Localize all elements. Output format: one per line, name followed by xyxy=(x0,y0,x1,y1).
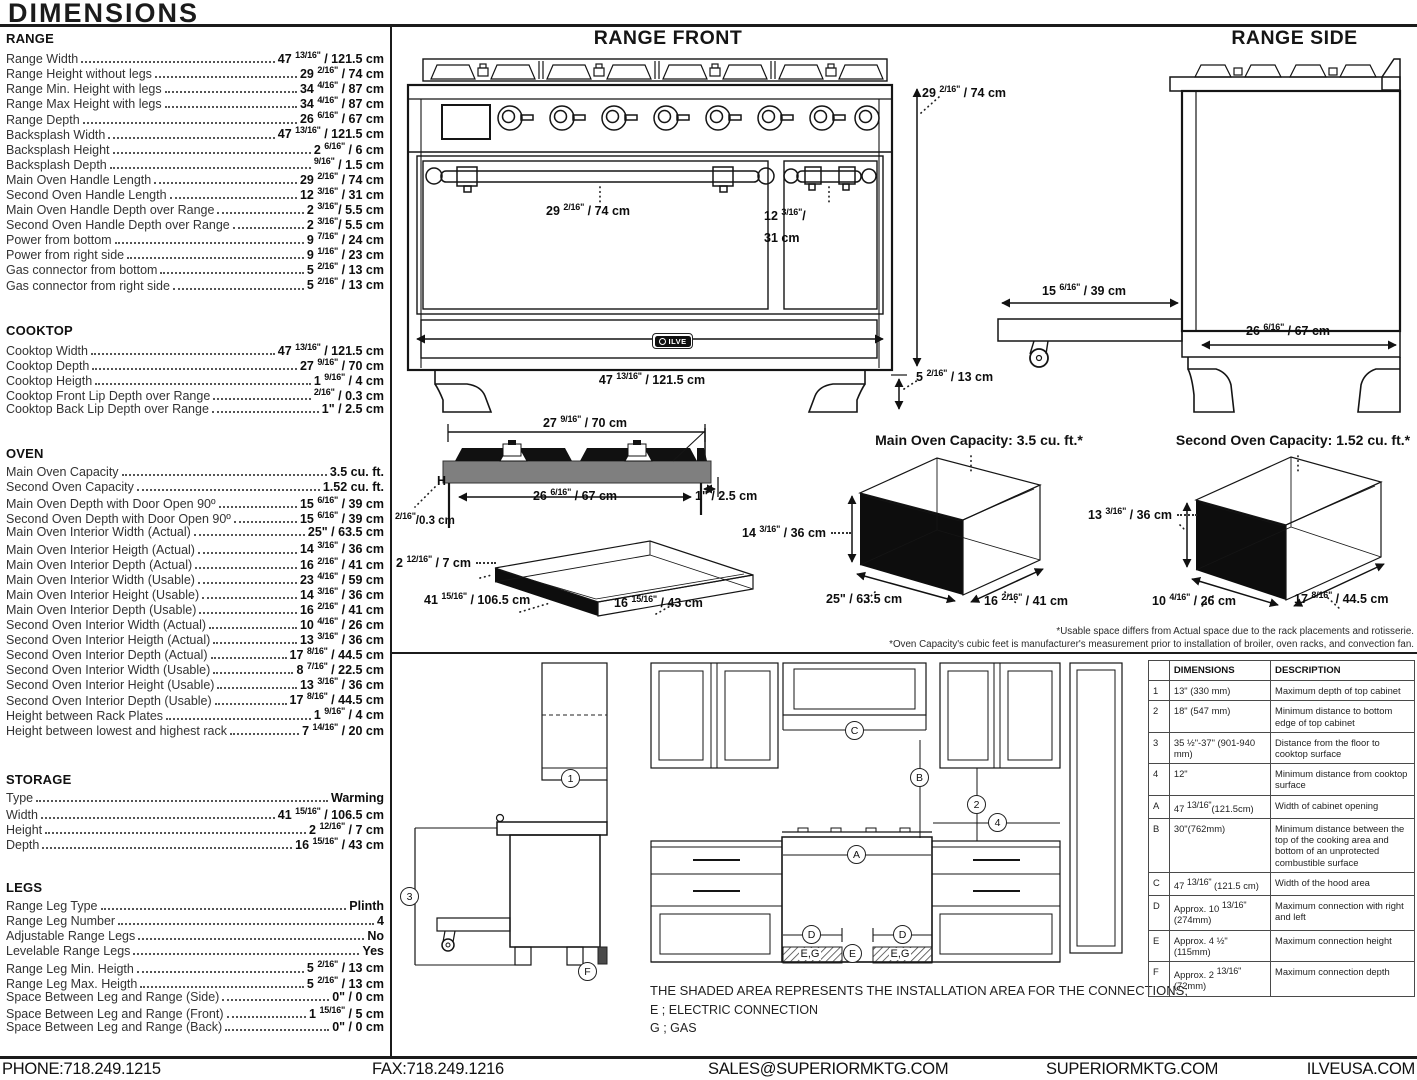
eg-chip-left: E,G xyxy=(785,948,835,960)
spec-row-value: 15 6/16" / 39 cm xyxy=(300,495,384,511)
spec-section-heading: COOKTOP xyxy=(6,322,384,340)
spec-row: Main Oven Capacity3.5 cu. ft. xyxy=(6,465,384,480)
spec-row-label: Range Height without legs xyxy=(6,67,152,81)
table-cell-key: F xyxy=(1149,962,1170,997)
dotted-leader xyxy=(95,383,311,385)
spec-row: Range Max Height with legs34 4/16" / 87 … xyxy=(6,95,384,110)
table-cell-description: Maximum connection height xyxy=(1271,930,1415,961)
second-oven-height-label: 13 3/16" / 36 cm xyxy=(1088,506,1197,522)
table-row: C47 13/16" (121.5 cm)Width of the hood a… xyxy=(1149,872,1415,895)
dotted-leader xyxy=(92,368,297,370)
spec-row: Second Oven Interior Heigth (Actual)13 3… xyxy=(6,631,384,646)
footer-website[interactable]: SUPERIORMKTG.COM xyxy=(1046,1060,1218,1079)
spec-row-value: 2 3/16"/ 5.5 cm xyxy=(307,216,384,232)
footer-email[interactable]: SALES@SUPERIORMKTG.COM xyxy=(708,1060,948,1079)
install-marker-3: 3 xyxy=(400,887,419,906)
side-depth-label: 26 6/16" / 67 cm xyxy=(1246,322,1330,338)
spec-row-value: 14 3/16" / 36 cm xyxy=(300,586,384,602)
spec-row-label: Range Depth xyxy=(6,113,80,127)
spec-sections: RANGERange Width47 13/16" / 121.5 cmRang… xyxy=(6,30,384,1035)
section-divider xyxy=(392,652,1417,654)
spec-row: Cooktop Depth27 9/16" / 70 cm xyxy=(6,357,384,372)
spec-row: Second Oven Interior Width (Actual)10 4/… xyxy=(6,616,384,631)
spec-row-value: 5 2/16" / 13 cm xyxy=(307,959,384,975)
spec-row: Cooktop Width47 13/16" / 121.5 cm xyxy=(6,342,384,357)
spec-row-value: 34 4/16" / 87 cm xyxy=(300,95,384,111)
dotted-leader xyxy=(212,411,319,413)
spec-row-value: 47 13/16" / 121.5 cm xyxy=(278,50,384,66)
spec-row-value: 3.5 cu. ft. xyxy=(330,465,384,479)
install-side-diagram xyxy=(400,655,655,990)
spec-row-label: Cooktop Heigth xyxy=(6,374,92,388)
footnotes: *Usable space differs from Actual space … xyxy=(834,626,1414,651)
table-cell-description: Minimum distance between the top of the … xyxy=(1271,818,1415,872)
table-cell-dimension: 47 13/16"(121.5cm) xyxy=(1169,795,1270,818)
spec-row-label: Main Oven Handle Depth over Range xyxy=(6,203,214,217)
spec-section-heading: OVEN xyxy=(6,445,384,463)
ilve-logo: ILVE xyxy=(652,333,693,349)
table-cell-key: 1 xyxy=(1149,681,1170,701)
storage-drawer-diagram xyxy=(478,538,778,623)
table-cell-key: 4 xyxy=(1149,764,1170,795)
main-oven-height-label: 14 3/16" / 36 cm xyxy=(742,524,851,540)
front-second-handle-line1: 12 3/16"/ xyxy=(764,201,806,227)
table-row: DApprox. 10 13/16" (274mm)Maximum connec… xyxy=(1149,896,1415,931)
spec-row-value: 27 9/16" / 70 cm xyxy=(300,357,384,373)
dotted-leader xyxy=(219,506,297,508)
table-cell-dimension: Approx. 2 13/16" (72mm) xyxy=(1169,962,1270,997)
front-main-handle-label: 29 2/16" / 74 cm xyxy=(546,202,630,218)
spec-row-label: Range Leg Number xyxy=(6,914,115,928)
storage-width-label: 41 15/16" / 106.5 cm xyxy=(424,591,530,607)
dotted-leader xyxy=(217,212,303,214)
spec-row: Backsplash Width47 13/16" / 121.5 cm xyxy=(6,125,384,140)
spec-section-heading: STORAGE xyxy=(6,771,384,789)
spec-row-value: 1 9/16" / 4 cm xyxy=(314,372,384,388)
spec-row-value: 9/16" / 1.5 cm xyxy=(314,156,384,172)
install-note: THE SHADED AREA REPRESENTS THE INSTALLAT… xyxy=(650,983,1188,998)
dotted-leader xyxy=(173,288,304,290)
dotted-leader xyxy=(209,627,297,629)
table-header-key xyxy=(1149,661,1170,681)
dotted-leader xyxy=(202,597,297,599)
spec-row-label: Second Oven Interior Width (Actual) xyxy=(6,618,206,632)
table-cell-key: D xyxy=(1149,896,1170,931)
eg-chip-right: E,G xyxy=(875,948,925,960)
spec-row: Gas connector from bottom5 2/16" / 13 cm xyxy=(6,261,384,276)
spec-row-label: Main Oven Interior Width (Usable) xyxy=(6,573,195,587)
spec-row: Range Leg TypePlinth xyxy=(6,899,384,914)
table-row: 218" (547 mm)Minimum distance to bottom … xyxy=(1149,701,1415,732)
spec-row-label: Power from bottom xyxy=(6,233,112,247)
cooktop-front-lip-label: 2/16"/0.3 cm xyxy=(395,511,455,527)
spec-row-value: 1.52 cu. ft. xyxy=(323,480,384,494)
spec-row-value: 47 13/16" / 121.5 cm xyxy=(278,342,384,358)
spec-row-label: Main Oven Interior Depth (Usable) xyxy=(6,603,196,617)
dotted-leader xyxy=(154,182,297,184)
spec-row-label: Adjustable Range Legs xyxy=(6,929,135,943)
spec-row-label: Range Min. Height with legs xyxy=(6,82,162,96)
install-marker-1: 1 xyxy=(561,769,580,788)
dotted-leader xyxy=(211,657,287,659)
main-oven-title: Main Oven Capacity: 3.5 cu. ft.* xyxy=(843,432,1115,448)
spec-row-value: 7 14/16" / 20 cm xyxy=(302,722,384,738)
table-cell-key: B xyxy=(1149,818,1170,872)
spec-row-label: Second Oven Capacity xyxy=(6,480,134,494)
spec-row-label: Main Oven Handle Length xyxy=(6,173,151,187)
second-oven-depth-label: 17 8/16" / 44.5 cm xyxy=(1294,590,1388,606)
table-cell-description: Distance from the floor to cooktop surfa… xyxy=(1271,732,1415,763)
dotted-leader xyxy=(165,106,297,108)
spec-row-label: Main Oven Depth with Door Open 90º xyxy=(6,497,216,511)
table-cell-dimension: 30"(762mm) xyxy=(1169,818,1270,872)
spec-row: Power from bottom9 7/16" / 24 cm xyxy=(6,231,384,246)
dotted-leader xyxy=(199,612,297,614)
spec-row-label: Main Oven Interior Heigth (Actual) xyxy=(6,543,195,557)
dotted-leader xyxy=(217,687,297,689)
table-cell-key: 3 xyxy=(1149,732,1170,763)
spec-row-label: Width xyxy=(6,808,38,822)
spec-row-label: Gas connector from right side xyxy=(6,279,170,293)
spec-row: Height2 12/16" / 7 cm xyxy=(6,821,384,836)
spec-row-label: Levelable Range Legs xyxy=(6,944,130,958)
dotted-leader xyxy=(101,908,347,910)
spec-row-label: Main Oven Interior Height (Usable) xyxy=(6,588,199,602)
dotted-leader xyxy=(233,227,304,229)
table-row: EApprox. 4 ½" (115mm)Maximum connection … xyxy=(1149,930,1415,961)
dotted-leader xyxy=(115,242,304,244)
spec-row: Main Oven Interior Width (Actual)25" / 6… xyxy=(6,525,384,540)
dotted-leader xyxy=(213,642,297,644)
spec-sheet-page: DIMENSIONS RANGERange Width47 13/16" / 1… xyxy=(0,0,1417,1080)
side-door-open-label: 15 6/16" / 39 cm xyxy=(1042,282,1126,298)
spec-section: RANGERange Width47 13/16" / 121.5 cmRang… xyxy=(6,30,384,292)
dotted-leader xyxy=(137,489,320,491)
spec-row-label: Second Oven Interior Depth (Usable) xyxy=(6,694,212,708)
dotted-leader xyxy=(133,953,359,955)
dotted-leader xyxy=(41,817,275,819)
ilve-logo-icon xyxy=(659,338,666,345)
spec-row-value: 2 3/16"/ 5.5 cm xyxy=(307,201,384,217)
spec-row-value: 16 2/16" / 41 cm xyxy=(300,601,384,617)
spec-row: Main Oven Handle Depth over Range2 3/16"… xyxy=(6,201,384,216)
dotted-leader xyxy=(198,582,297,584)
table-cell-description: Maximum depth of top cabinet xyxy=(1271,681,1415,701)
table-header-row: DIMENSIONS DESCRIPTION xyxy=(1149,661,1415,681)
spec-row: Second Oven Depth with Door Open 90º15 6… xyxy=(6,510,384,525)
spec-row-value: 14 3/16" / 36 cm xyxy=(300,540,384,556)
spec-row-label: Range Leg Max. Heigth xyxy=(6,977,137,991)
table-cell-dimension: 47 13/16" (121.5 cm) xyxy=(1169,872,1270,895)
install-marker-F: F xyxy=(578,962,597,981)
spec-row-value: 9 1/16" / 23 cm xyxy=(307,246,384,262)
table-row: FApprox. 2 13/16" (72mm)Maximum connecti… xyxy=(1149,962,1415,997)
spec-row: Width41 15/16" / 106.5 cm xyxy=(6,806,384,821)
spec-row-label: Space Between Leg and Range (Back) xyxy=(6,1020,222,1034)
legend-electric: E ; ELECTRIC CONNECTION xyxy=(650,1003,818,1017)
spec-row-label: Cooktop Depth xyxy=(6,359,89,373)
spec-row: Cooktop Heigth1 9/16" / 4 cm xyxy=(6,372,384,387)
install-marker-B: B xyxy=(910,768,929,787)
spec-row-value: 47 13/16" / 121.5 cm xyxy=(278,125,384,141)
table-cell-dimension: 13" (330 mm) xyxy=(1169,681,1270,701)
spec-row-value: 29 2/16" / 74 cm xyxy=(300,65,384,81)
spec-row: Space Between Leg and Range (Side)0" / 0… xyxy=(6,990,384,1005)
column-divider xyxy=(390,25,392,1056)
spec-row: Height between lowest and highest rack7 … xyxy=(6,722,384,737)
footnote-line: *Usable space differs from Actual space … xyxy=(834,626,1414,639)
install-marker-2: 2 xyxy=(967,795,986,814)
spec-row-value: 34 4/16" / 87 cm xyxy=(300,80,384,96)
table-cell-description: Maximum connection with right and left xyxy=(1271,896,1415,931)
table-cell-description: Width of the hood area xyxy=(1271,872,1415,895)
spec-row: Main Oven Interior Heigth (Actual)14 3/1… xyxy=(6,540,384,555)
footnote-line: *Oven Capacity's cubic feet is manufactu… xyxy=(834,639,1414,652)
spec-row: Main Oven Interior Width (Usable)23 4/16… xyxy=(6,571,384,586)
install-marker-D: D xyxy=(893,925,912,944)
spec-row: Space Between Leg and Range (Front)1 15/… xyxy=(6,1005,384,1020)
table-cell-dimension: 18" (547 mm) xyxy=(1169,701,1270,732)
table-cell-description: Minimum distance to bottom edge of top c… xyxy=(1271,701,1415,732)
dotted-leader xyxy=(165,91,297,93)
spec-row: Second Oven Interior Height (Usable)13 3… xyxy=(6,676,384,691)
main-oven-width-label: 25" / 63.5 cm xyxy=(826,592,902,606)
dotted-leader xyxy=(213,672,293,674)
ilve-logo-text: ILVE xyxy=(669,337,687,346)
install-marker-D: D xyxy=(802,925,821,944)
table-row: 412"Minimum distance from cooktop surfac… xyxy=(1149,764,1415,795)
dotted-leader xyxy=(230,733,299,735)
table-cell-dimension: Approx. 10 13/16" (274mm) xyxy=(1169,896,1270,931)
spec-row-value: 29 2/16" / 74 cm xyxy=(300,171,384,187)
storage-height-label: 2 12/16" / 7 cm xyxy=(396,554,496,570)
table-cell-key: E xyxy=(1149,930,1170,961)
spec-row: Second Oven Interior Width (Usable)8 7/1… xyxy=(6,661,384,676)
legend-gas: G ; GAS xyxy=(650,1021,697,1035)
spec-row-label: Depth xyxy=(6,838,39,852)
spec-row-value: 12 3/16" / 31 cm xyxy=(300,186,384,202)
table-body: 113" (330 mm)Maximum depth of top cabine… xyxy=(1149,681,1415,996)
spec-row-label: Space Between Leg and Range (Side) xyxy=(6,990,219,1004)
table-row: B30"(762mm)Minimum distance between the … xyxy=(1149,818,1415,872)
install-front-diagram xyxy=(648,658,1146,970)
spec-row-label: Main Oven Interior Depth (Actual) xyxy=(6,558,192,572)
spec-row-value: No xyxy=(367,929,384,943)
spec-row: Space Between Leg and Range (Back)0" / 0… xyxy=(6,1020,384,1035)
spec-row-label: Type xyxy=(6,791,33,805)
spec-row: Range Depth26 6/16" / 67 cm xyxy=(6,110,384,125)
dotted-leader xyxy=(108,137,274,139)
install-marker-E: E xyxy=(843,944,862,963)
spec-row-value: Warming xyxy=(331,791,384,805)
front-leg-height-label: 5 2/16" / 13 cm xyxy=(916,368,993,384)
spec-row: Range Height without legs29 2/16" / 74 c… xyxy=(6,65,384,80)
spec-row: Gas connector from right side5 2/16" / 1… xyxy=(6,276,384,291)
spec-row-value: 2/16" / 0.3 cm xyxy=(314,387,384,403)
spec-row: Second Oven Interior Depth (Actual)17 8/… xyxy=(6,646,384,661)
cooktop-h-mark: H xyxy=(437,474,446,488)
spec-row: Main Oven Handle Length29 2/16" / 74 cm xyxy=(6,171,384,186)
install-marker-A: A xyxy=(847,845,866,864)
dotted-leader xyxy=(42,847,292,849)
spec-row-label: Height between lowest and highest rack xyxy=(6,724,227,738)
spec-row-value: 13 3/16" / 36 cm xyxy=(300,676,384,692)
spec-row-value: 13 3/16" / 36 cm xyxy=(300,631,384,647)
second-oven-width-label: 10 4/16" / 26 cm xyxy=(1152,592,1236,608)
table-cell-dimension: 12" xyxy=(1169,764,1270,795)
spec-section-heading: LEGS xyxy=(6,879,384,897)
spec-row-label: Gas connector from bottom xyxy=(6,263,157,277)
spec-row: Second Oven Handle Length12 3/16" / 31 c… xyxy=(6,186,384,201)
dotted-leader xyxy=(110,167,311,169)
dotted-leader xyxy=(227,1016,307,1018)
spec-row-label: Height xyxy=(6,823,42,837)
table-cell-key: C xyxy=(1149,872,1170,895)
table-row: 335 ½"-37" (901-940 mm)Distance from the… xyxy=(1149,732,1415,763)
footer-phone: PHONE:718.249.1215 xyxy=(2,1060,161,1079)
spec-row: Main Oven Depth with Door Open 90º15 6/1… xyxy=(6,495,384,510)
dotted-leader xyxy=(160,272,303,274)
table-cell-description: Minimum distance from cooktop surface xyxy=(1271,764,1415,795)
spec-row-value: 23 4/16" / 59 cm xyxy=(300,571,384,587)
dotted-leader xyxy=(234,521,297,523)
spec-row: Main Oven Interior Depth (Actual)16 2/16… xyxy=(6,556,384,571)
spec-row-label: Space Between Leg and Range (Front) xyxy=(6,1007,224,1021)
dotted-leader xyxy=(155,76,297,78)
spec-row-value: 2 6/16" / 6 cm xyxy=(314,141,384,157)
table-cell-description: Maximum connection depth xyxy=(1271,962,1415,997)
range-front-title: RANGE FRONT xyxy=(540,27,796,50)
dotted-leader xyxy=(45,832,306,834)
spec-row-value: 16 2/16" / 41 cm xyxy=(300,556,384,572)
spec-section-heading: RANGE xyxy=(6,30,384,48)
spec-row: TypeWarming xyxy=(6,791,384,806)
spec-row-value: 17 8/16" / 44.5 cm xyxy=(290,646,384,662)
table-cell-dimension: 35 ½"-37" (901-940 mm) xyxy=(1169,732,1270,763)
range-front-diagram xyxy=(405,55,950,415)
install-marker-4: 4 xyxy=(988,813,1007,832)
spec-row-label: Second Oven Depth with Door Open 90º xyxy=(6,512,231,526)
spec-row: Power from right side9 1/16" / 23 cm xyxy=(6,246,384,261)
dotted-leader xyxy=(166,718,311,720)
dotted-leader xyxy=(198,552,297,554)
spec-section: LEGSRange Leg TypePlinthRange Leg Number… xyxy=(6,879,384,1035)
dotted-leader xyxy=(36,800,328,802)
table-row: A47 13/16"(121.5cm)Width of cabinet open… xyxy=(1149,795,1415,818)
spec-row: Range Leg Max. Heigth5 2/16" / 13 cm xyxy=(6,975,384,990)
spec-row-value: 1" / 2.5 cm xyxy=(322,402,384,416)
table-header-dimensions: DIMENSIONS xyxy=(1169,661,1270,681)
dotted-leader xyxy=(213,398,311,400)
spec-section: COOKTOPCooktop Width47 13/16" / 121.5 cm… xyxy=(6,322,384,417)
spec-row: Range Min. Height with legs34 4/16" / 87… xyxy=(6,80,384,95)
spec-row-label: Main Oven Interior Width (Actual) xyxy=(6,525,191,539)
dotted-leader xyxy=(222,999,329,1001)
spec-row-value: 4 xyxy=(377,914,384,928)
spec-row-value: 15 6/16" / 39 cm xyxy=(300,510,384,526)
dotted-leader xyxy=(113,152,311,154)
dotted-leader xyxy=(138,938,364,940)
cooktop-inner-width-label: 26 6/16" / 67 cm xyxy=(495,487,655,503)
spec-row-value: Plinth xyxy=(349,899,384,913)
spec-row-label: Range Max Height with legs xyxy=(6,97,162,111)
dotted-leader xyxy=(81,61,275,63)
dotted-leader xyxy=(170,197,297,199)
spec-row: Cooktop Back Lip Depth over Range1" / 2.… xyxy=(6,402,384,417)
spec-row: Range Width47 13/16" / 121.5 cm xyxy=(6,50,384,65)
spec-row: Second Oven Handle Depth over Range2 3/1… xyxy=(6,216,384,231)
spec-row-value: 9 7/16" / 24 cm xyxy=(307,231,384,247)
spec-row-label: Second Oven Handle Length xyxy=(6,188,167,202)
cooktop-back-lip-label: 1" / 2.5 cm xyxy=(695,489,757,503)
range-side-title: RANGE SIDE xyxy=(1172,27,1417,50)
spec-row-label: Second Oven Interior Width (Usable) xyxy=(6,663,210,677)
install-marker-C: C xyxy=(845,721,864,740)
front-height-label: 29 2/16" / 74 cm xyxy=(922,84,1006,100)
front-second-handle-label: 12 3/16"/ 31 cm xyxy=(764,201,806,249)
spec-row-label: Cooktop Width xyxy=(6,344,88,358)
spec-row-label: Range Width xyxy=(6,52,78,66)
dotted-leader xyxy=(118,923,374,925)
spec-row-label: Backsplash Depth xyxy=(6,158,107,172)
spec-row-label: Main Oven Capacity xyxy=(6,465,119,479)
front-width-label: 47 13/16" / 121.5 cm xyxy=(552,371,752,387)
spec-row-value: 26 6/16" / 67 cm xyxy=(300,110,384,126)
dotted-leader xyxy=(122,474,327,476)
spec-row-label: Range Leg Min. Heigth xyxy=(6,962,134,976)
spec-row-value: 17 8/16" / 44.5 cm xyxy=(290,691,384,707)
second-oven-title: Second Oven Capacity: 1.52 cu. ft.* xyxy=(1168,432,1417,448)
spec-row: Range Leg Number4 xyxy=(6,914,384,929)
dotted-leader xyxy=(91,353,275,355)
spec-row: Depth16 15/16" / 43 cm xyxy=(6,836,384,851)
spec-row-value: 5 2/16" / 13 cm xyxy=(307,261,384,277)
cooktop-width-label: 27 9/16" / 70 cm xyxy=(500,414,670,430)
spec-row: Main Oven Interior Height (Usable)14 3/1… xyxy=(6,586,384,601)
spec-row-value: 1 15/16" / 5 cm xyxy=(309,1005,384,1021)
spec-row-label: Backsplash Width xyxy=(6,128,105,142)
spec-section: STORAGETypeWarmingWidth41 15/16" / 106.5… xyxy=(6,771,384,851)
spec-row-value: 0" / 0 cm xyxy=(332,990,384,1004)
spec-row-value: Yes xyxy=(362,944,384,958)
dotted-leader xyxy=(137,971,304,973)
dotted-leader xyxy=(195,567,297,569)
spec-row-value: 2 12/16" / 7 cm xyxy=(309,821,384,837)
dotted-leader xyxy=(215,703,287,705)
spec-row: Second Oven Capacity1.52 cu. ft. xyxy=(6,480,384,495)
spec-row-label: Power from right side xyxy=(6,248,124,262)
spec-row: Cooktop Front Lip Depth over Range2/16" … xyxy=(6,387,384,402)
table-cell-description: Width of cabinet opening xyxy=(1271,795,1415,818)
spec-row-label: Second Oven Interior Depth (Actual) xyxy=(6,648,208,662)
table-cell-dimension: Approx. 4 ½" (115mm) xyxy=(1169,930,1270,961)
spec-row-value: 10 4/16" / 26 cm xyxy=(300,616,384,632)
footer-fax: FAX:718.249.1216 xyxy=(372,1060,504,1079)
spec-row: Levelable Range LegsYes xyxy=(6,944,384,959)
spec-row: Backsplash Depth9/16" / 1.5 cm xyxy=(6,156,384,171)
dotted-leader xyxy=(225,1029,329,1031)
spec-row-value: 5 2/16" / 13 cm xyxy=(307,276,384,292)
spec-row-label: Second Oven Handle Depth over Range xyxy=(6,218,230,232)
table-row: 113" (330 mm)Maximum depth of top cabine… xyxy=(1149,681,1415,701)
spec-row-value: 0" / 0 cm xyxy=(332,1020,384,1034)
dotted-leader xyxy=(194,534,305,536)
spec-row-value: 1 9/16" / 4 cm xyxy=(314,706,384,722)
dotted-leader xyxy=(127,257,304,259)
footer-ilve-website[interactable]: ILVEUSA.COM xyxy=(1307,1060,1415,1079)
main-oven-depth-label: 16 2/16" / 41 cm xyxy=(984,592,1068,608)
spec-row-value: 8 7/16" / 22.5 cm xyxy=(296,661,384,677)
